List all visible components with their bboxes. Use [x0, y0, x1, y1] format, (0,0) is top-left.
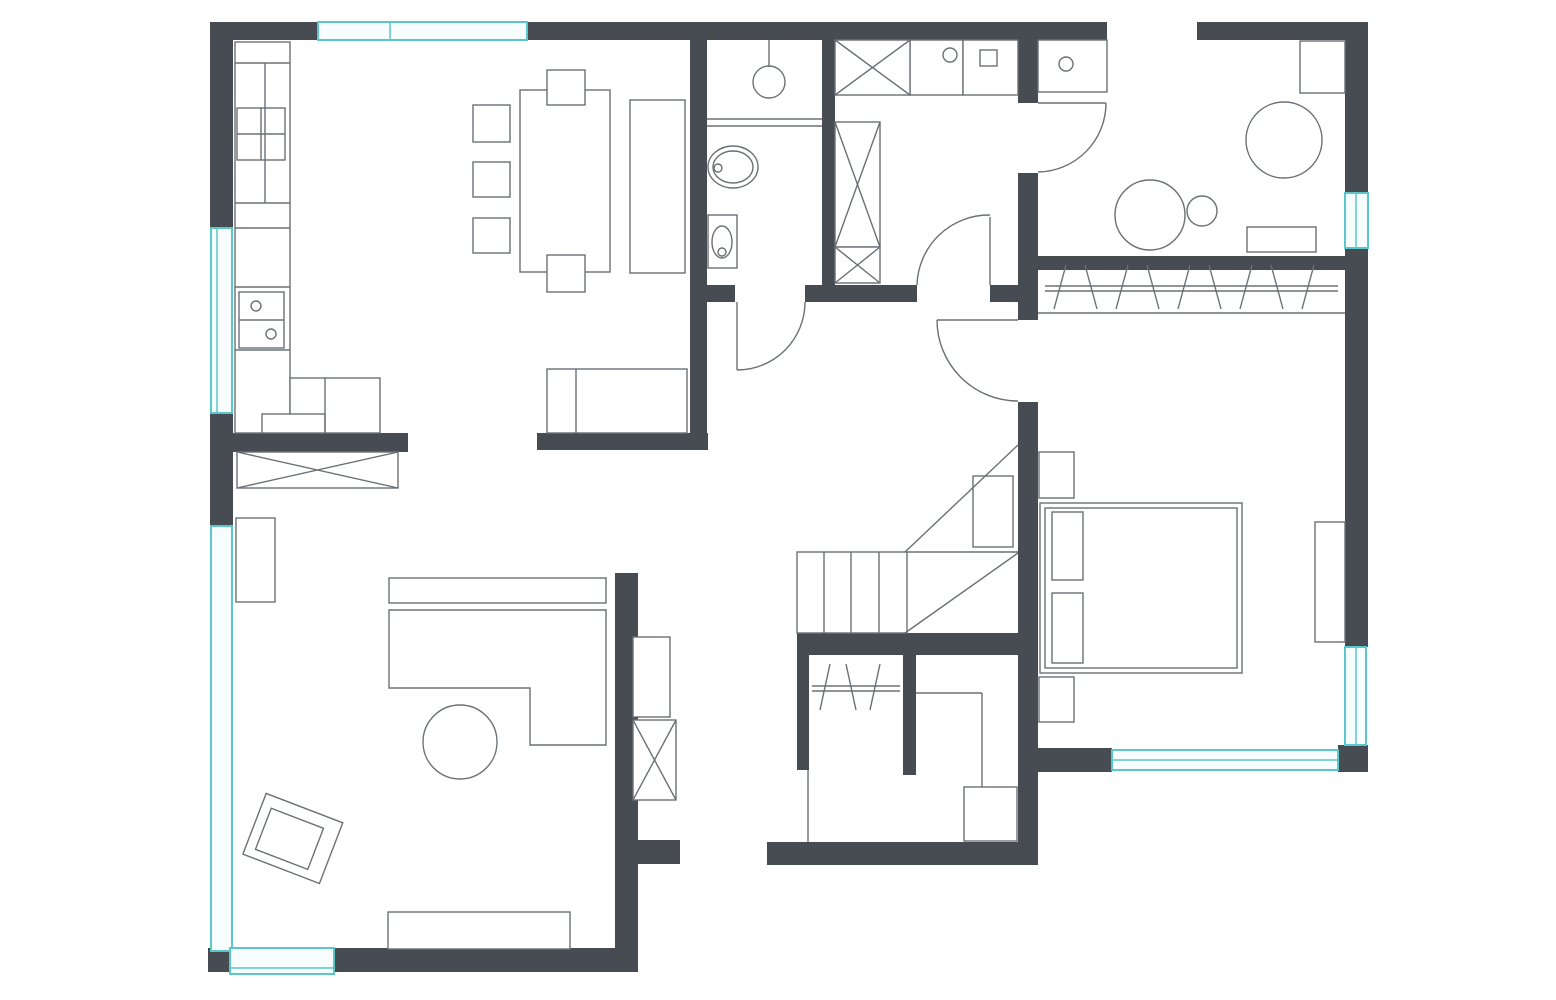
door-bathroom-swing-arc [737, 302, 805, 370]
living-shelf [236, 518, 275, 602]
door-bedroom-swing-arc [937, 320, 1018, 401]
floor-plan [0, 0, 1556, 1000]
topright-bench [1247, 227, 1316, 252]
stairs-landing [973, 476, 1013, 547]
wall-living-stub [638, 840, 680, 864]
window-left-kitchen [211, 228, 232, 413]
basin-drain [714, 164, 722, 172]
hanger-1 [1054, 265, 1066, 309]
topright-round-table [1246, 102, 1322, 178]
wall-closet-top [1038, 256, 1345, 270]
bedroom-radiator [1315, 522, 1345, 642]
dining-chair-left-1 [473, 105, 510, 142]
wall-closet-divider [903, 655, 916, 775]
floor-plan-svg [0, 0, 1556, 1000]
wall-closet-left [797, 655, 809, 770]
wall-left-middle [210, 413, 233, 526]
small-closet-hanger-3 [870, 664, 880, 710]
dining-sideboard [630, 100, 685, 273]
wall-top-center [527, 22, 1107, 40]
hanger-5 [1178, 265, 1190, 309]
toilet-flush [718, 248, 726, 256]
hanger-6 [1209, 265, 1221, 309]
sofa-body [389, 610, 606, 745]
wall-right-main [1345, 248, 1368, 647]
dining-chair-left-2 [473, 162, 510, 197]
laundry-sink-drain [943, 48, 957, 62]
hanger-4 [1147, 265, 1159, 309]
topright-stool [1187, 196, 1217, 226]
wall-bathroom-bottom-a [707, 285, 735, 302]
dining-daybed [547, 369, 687, 433]
nightstand-bottom [1039, 677, 1074, 722]
wall-dining-bottom [537, 433, 708, 450]
wall-bathroom-laundry-divider [822, 40, 835, 285]
door-utility-swing-arc [1038, 103, 1106, 172]
wall-bathroom-bottom-b [805, 285, 917, 302]
living-armchair [243, 793, 343, 883]
sofa-back [389, 578, 606, 603]
door-laundry-swing-arc [917, 215, 990, 285]
dining-chair-top [547, 70, 585, 105]
kitchen-counter [235, 42, 290, 433]
nightstand-top [1039, 452, 1074, 498]
hanger-9 [1302, 265, 1314, 309]
hall-shelf [633, 637, 670, 717]
small-closet-hanger-1 [820, 664, 830, 710]
wall-left-upper [210, 22, 233, 228]
wall-hall-right-b [1018, 173, 1038, 320]
topright-armchair [1115, 180, 1185, 250]
kitchen-sink-bowl-2 [266, 329, 276, 339]
hanger-2 [1085, 265, 1097, 309]
wall-bottom-middle [767, 842, 1038, 865]
dining-chair-bottom [547, 255, 585, 292]
kitchen-low-cabinet [262, 414, 325, 433]
utility-sink-drain [1059, 57, 1073, 71]
wall-kitchen-bottom [233, 433, 408, 452]
wall-hall-right-a [1018, 40, 1038, 103]
wall-top-right [1197, 22, 1368, 40]
tv-bench [388, 912, 570, 949]
dining-table [520, 90, 610, 272]
topright-desk [1300, 41, 1345, 93]
kitchen-sink-bowl-1 [251, 301, 261, 311]
wall-bathroom-bottom-c [990, 285, 1018, 302]
hanger-8 [1271, 265, 1283, 309]
hanger-7 [1240, 265, 1252, 309]
coffee-table [423, 705, 497, 779]
wall-hall-right-c [1018, 402, 1038, 842]
bed-pillow-2 [1052, 593, 1083, 663]
small-closet-hanger-2 [846, 664, 856, 710]
wall-right-upper [1345, 22, 1368, 193]
laundry-counter-appliance [963, 40, 1018, 95]
stairs-break-lower [905, 553, 1018, 633]
window-bottom-living [230, 948, 334, 974]
hanger-3 [1116, 265, 1128, 309]
dining-chair-left-3 [473, 218, 510, 253]
wall-bathroom-left [690, 40, 707, 450]
wall-stairs-bottom [797, 633, 1018, 655]
shower-head [753, 66, 785, 98]
laundry-counter-sink [910, 40, 963, 95]
stairs-treads [797, 552, 907, 633]
laundry-appliance-inner [980, 50, 997, 66]
wall-right-bottom-corner [1338, 745, 1368, 772]
bed-pillow-1 [1052, 512, 1083, 580]
storage-cabinet [964, 787, 1017, 841]
window-left-living [211, 526, 232, 951]
window-top-dining [318, 22, 527, 40]
